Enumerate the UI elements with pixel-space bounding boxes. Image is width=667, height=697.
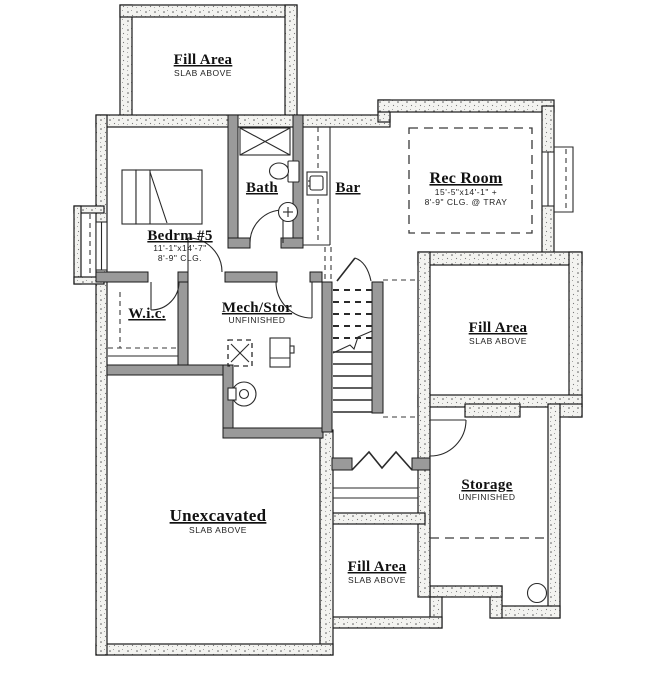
rec-room-dim: 15'-5"x14'-1" + — [435, 187, 497, 197]
storage-door — [430, 420, 466, 456]
shower-icon — [240, 128, 290, 155]
staircase — [333, 290, 372, 412]
rec-room-window — [542, 152, 554, 206]
fill-area-right-label: Fill Area — [469, 320, 528, 336]
storage-sub: UNFINISHED — [459, 492, 516, 502]
fill-area-top-sub: SLAB ABOVE — [174, 68, 232, 78]
bath-door — [250, 210, 283, 243]
storage-label: Storage — [461, 477, 512, 493]
floor-plan-drawing: Fill Area SLAB ABOVE Bedrm #5 11'-1"x14'… — [0, 0, 667, 697]
interior-walls — [96, 115, 430, 470]
mech-stor-sub: UNFINISHED — [229, 315, 286, 325]
bedroom-window — [90, 214, 107, 276]
toilet-icon — [270, 161, 300, 182]
fill-area-right-sub: SLAB ABOVE — [469, 336, 527, 346]
rec-room-clg: 8'-9" CLG. @ TRAY — [425, 197, 508, 207]
fill-area-top-label: Fill Area — [174, 52, 233, 68]
furnace-icon — [228, 340, 252, 366]
fill-area-bottom-sub: SLAB ABOVE — [348, 575, 406, 585]
bed-icon — [122, 170, 202, 224]
mech-stor-label: Mech/Stor — [222, 300, 292, 316]
window-well-right — [554, 147, 573, 212]
bedroom-dim: 11'-1"x14'-7" — [153, 243, 206, 253]
bedroom-label: Bedrm #5 — [147, 228, 212, 244]
bar-label: Bar — [335, 180, 360, 196]
bar-counter — [303, 127, 330, 245]
wic-label: W.i.c. — [128, 306, 166, 322]
rec-room-label: Rec Room — [429, 170, 502, 187]
sink-icon — [279, 203, 298, 222]
fill-area-bottom-label: Fill Area — [348, 559, 407, 575]
unexcavated-label: Unexcavated — [170, 506, 267, 525]
floor-plan-page: Fill Area SLAB ABOVE Bedrm #5 11'-1"x14'… — [0, 0, 667, 697]
unexcavated-sub: SLAB ABOVE — [189, 525, 247, 535]
sump-pump-icon — [528, 584, 547, 603]
stair-top-door — [337, 258, 371, 281]
electrical-panel-icon — [270, 338, 294, 367]
bar-sink-icon — [307, 172, 327, 195]
bath-label: Bath — [246, 180, 278, 196]
bedroom-clg: 8'-9" CLG. — [158, 253, 202, 263]
wic-shelf — [108, 292, 178, 356]
